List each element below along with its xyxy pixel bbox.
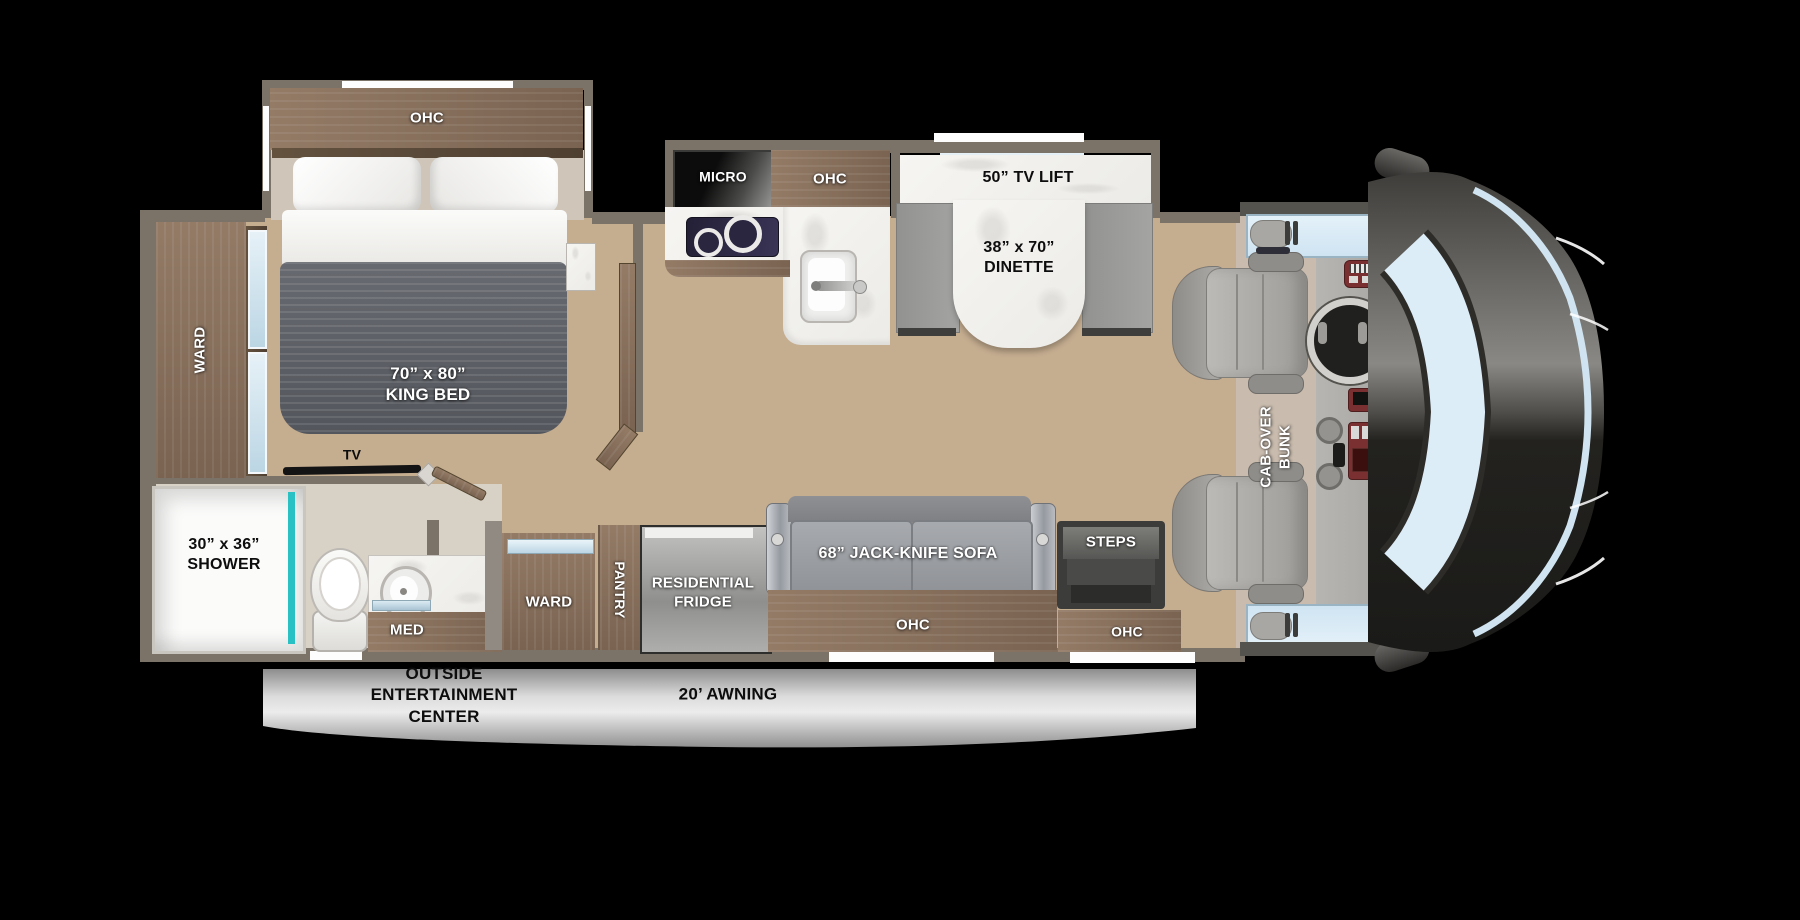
- kitchen-faucet-base: [811, 281, 821, 291]
- dinette-window: [934, 133, 1084, 142]
- sofa-ohc-label: OHC: [896, 617, 930, 636]
- med-cabinet: [368, 612, 502, 652]
- ward-bottom-mirror: [507, 539, 594, 554]
- microwave-label: MICRO: [699, 168, 747, 186]
- passenger-armrest-bottom: [1248, 584, 1304, 604]
- kitchen-lower-cabinet: [665, 260, 790, 277]
- cab-door-vent-top-2: [1293, 221, 1298, 245]
- ward-mirror-lower: [248, 352, 267, 474]
- bath-bottom-window: [310, 651, 362, 660]
- dinette-label: 38” x 70”DINETTE: [983, 238, 1054, 278]
- driver-seat-cushion: [1206, 268, 1308, 378]
- entry-steps-tread-bottom: [1071, 585, 1151, 603]
- rv-floorplan-canvas: OUTSIDE ENTERTAINMENT CENTER 20’ AWNING …: [0, 0, 1800, 920]
- steering-wheel-slot-left: [1318, 322, 1327, 344]
- bedroom-ohc-label: OHC: [410, 110, 444, 129]
- toilet-seat: [319, 557, 361, 611]
- cab-door-vent-bottom-2: [1293, 613, 1298, 637]
- bed-blanket: [280, 262, 567, 434]
- kitchen-ohc-label: OHC: [813, 171, 847, 190]
- passenger-seat-cushion: [1206, 476, 1308, 590]
- entry-steps-tread-mid: [1067, 559, 1155, 585]
- bed-pillow-left: [293, 157, 421, 213]
- bath-sink-drain: [400, 588, 407, 595]
- driver-armrest-top: [1248, 252, 1304, 272]
- pantry-label: PANTRY: [610, 561, 628, 618]
- bedroom-window-right: [585, 106, 591, 191]
- bedroom-sliding-door: [619, 263, 636, 433]
- cab-over-bunk-label: CAB-OVERBUNK: [1257, 406, 1295, 488]
- tv-lift-label: 50” TV LIFT: [982, 168, 1073, 188]
- entry-ohc-label: OHC: [1111, 623, 1143, 641]
- passenger-seat-seam-2: [1262, 482, 1264, 582]
- kitchen-faucet-head: [853, 280, 867, 294]
- outside-entertainment-label: OUTSIDE ENTERTAINMENT CENTER: [371, 663, 518, 727]
- driver-seat-seam-2: [1262, 274, 1264, 370]
- driver-seat-seam-1: [1236, 274, 1238, 370]
- bedroom-tv-label: TV: [343, 446, 361, 464]
- cooktop-burner-small: [694, 228, 723, 257]
- sofa-label: 68” JACK-KNIFE SOFA: [819, 544, 998, 564]
- dinette-bench-base-right: [1082, 328, 1151, 336]
- passenger-seat-seam-1: [1236, 482, 1238, 582]
- cab-door-vent-bottom-1: [1285, 613, 1290, 637]
- fridge-label: RESIDENTIALFRIDGE: [652, 574, 754, 612]
- entry-door-frame: [485, 521, 502, 650]
- king-bed-label: 70” x 80”KING BED: [386, 363, 471, 406]
- cupholder-bottom: [1316, 463, 1343, 490]
- dinette-bench-right: [1082, 203, 1153, 333]
- med-cabinet-label: MED: [390, 622, 424, 641]
- top-wall-bedroom: [140, 210, 265, 222]
- bed-sheet: [282, 210, 567, 268]
- sofa-bottom-window: [829, 652, 994, 662]
- sofa-knob-right: [1036, 533, 1049, 546]
- sofa-knob-left: [771, 533, 784, 546]
- dinette-bench-base-left: [898, 328, 956, 336]
- ward-mirror-upper: [248, 230, 267, 349]
- dinette-bench-left-back: [896, 203, 910, 331]
- shower-label: 30” x 36”SHOWER: [187, 535, 260, 575]
- sofa-arm-right: [1029, 503, 1056, 598]
- cupholder-top: [1316, 417, 1343, 444]
- steps-label: STEPS: [1086, 534, 1136, 553]
- top-wall-cab: [1160, 212, 1240, 223]
- cooktop-burner-large: [724, 215, 762, 253]
- cab-door-vent-top-1: [1285, 221, 1290, 245]
- fridge-top-trim: [645, 528, 753, 538]
- top-wall-mid: [592, 212, 672, 224]
- sofa-back: [788, 496, 1031, 522]
- shower-glass-teal: [288, 492, 295, 644]
- console-slot: [1333, 443, 1345, 467]
- entry-bottom-window: [1070, 652, 1195, 663]
- bedroom-window-left: [263, 106, 269, 191]
- awning-label: 20’ AWNING: [679, 683, 778, 704]
- driver-seatbelt: [1256, 247, 1290, 254]
- ward-left-label: WARD: [192, 327, 211, 374]
- nightstand-right: [566, 243, 596, 291]
- bath-faucet-ledge: [372, 600, 431, 611]
- ward-bottom-label: WARD: [526, 594, 573, 613]
- bed-pillow-right: [430, 157, 558, 213]
- front-cap: [1350, 130, 1630, 690]
- driver-armrest-bottom: [1248, 374, 1304, 394]
